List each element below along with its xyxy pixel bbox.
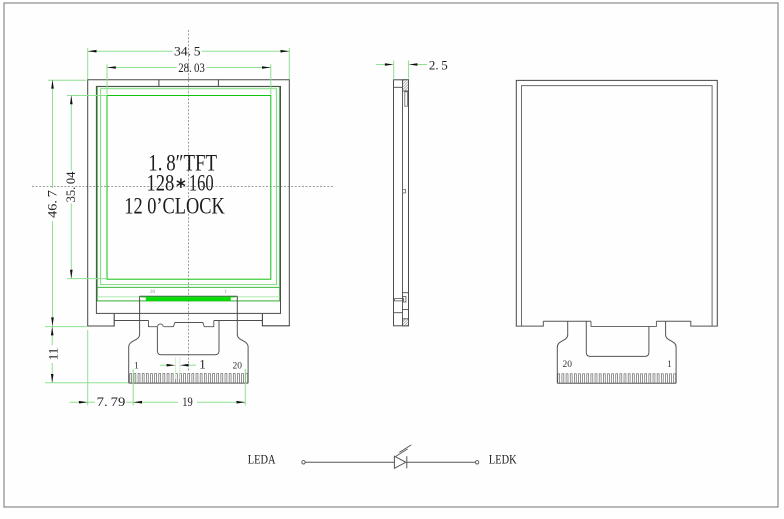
svg-text:19: 19 (182, 395, 193, 409)
svg-text:11: 11 (46, 348, 60, 361)
svg-text:20: 20 (563, 360, 573, 370)
svg-text:1: 1 (225, 290, 228, 295)
svg-text:20: 20 (233, 361, 243, 371)
svg-text:46. 7: 46. 7 (46, 190, 60, 218)
svg-text:2. 5: 2. 5 (429, 58, 448, 72)
svg-text:7. 79: 7. 79 (97, 395, 126, 409)
svg-text:28. 03: 28. 03 (178, 61, 205, 75)
svg-text:12 0’CLOCK: 12 0’CLOCK (124, 194, 225, 220)
svg-text:1: 1 (134, 361, 139, 371)
svg-text:20: 20 (150, 290, 156, 295)
svg-text:LEDK: LEDK (489, 452, 517, 467)
svg-text:35. 04: 35. 04 (64, 171, 78, 203)
svg-text:LEDA: LEDA (248, 452, 276, 467)
svg-text:34. 5: 34. 5 (174, 45, 201, 59)
svg-text:1: 1 (199, 357, 206, 372)
svg-text:1: 1 (667, 360, 672, 370)
